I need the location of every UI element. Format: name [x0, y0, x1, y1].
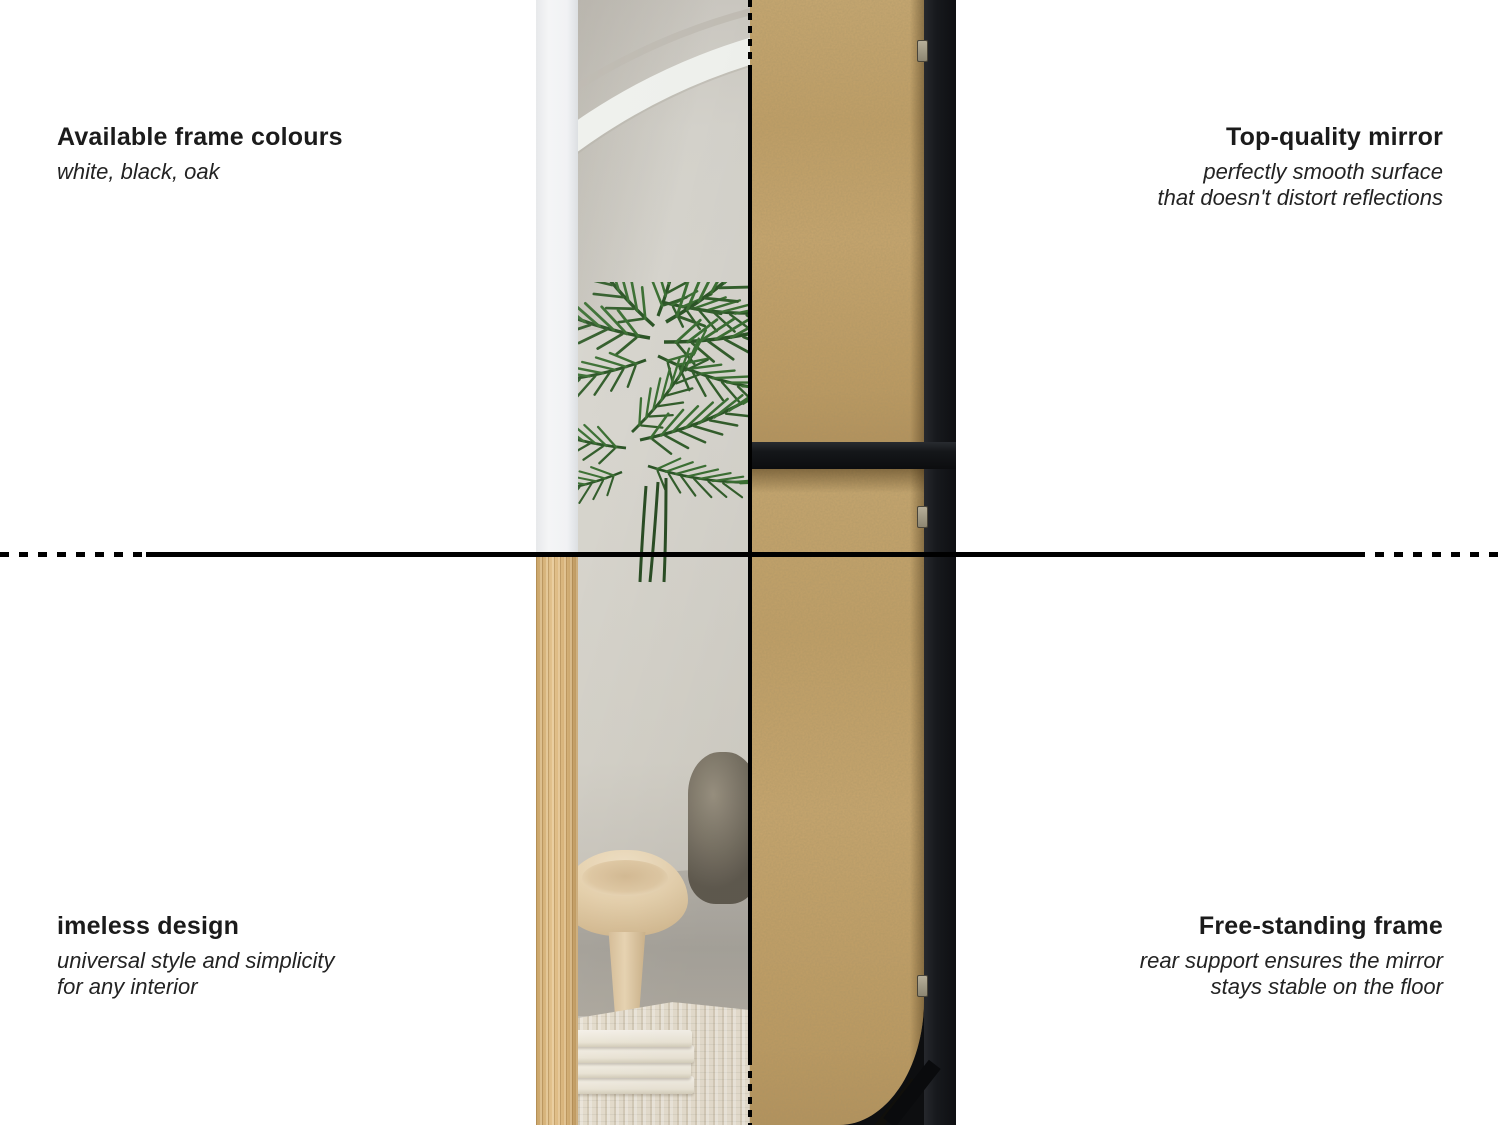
- vertical-guide-line: [748, 70, 752, 1058]
- mirror-frame-oak: [536, 557, 578, 1125]
- feature-description-line: universal style and simplicity: [57, 948, 477, 974]
- mirror-front-view: [536, 0, 750, 1125]
- feature-description-line: white, black, oak: [57, 159, 477, 185]
- mdf-back-panel-upper: [750, 0, 924, 442]
- mirror-glass-sheen: [578, 0, 750, 1125]
- feature-title: Available frame colours: [57, 122, 477, 152]
- rear-bar-shadow: [750, 469, 924, 493]
- mdf-back-panel-lower: [750, 442, 924, 1125]
- feature-description: white, black, oak: [57, 159, 477, 185]
- feature-description: rear support ensures the mirror stays st…: [1023, 948, 1443, 1000]
- feature-description-line: rear support ensures the mirror: [1023, 948, 1443, 974]
- mdf-texture: [750, 442, 924, 1125]
- mdf-edge-shadow: [910, 0, 924, 442]
- mirror-reflection: [578, 0, 750, 1125]
- feature-description-line: perfectly smooth surface: [1023, 159, 1443, 185]
- feature-description-line: for any interior: [57, 974, 477, 1000]
- feature-top-quality-mirror: Top-quality mirror perfectly smooth surf…: [1023, 122, 1443, 211]
- frame-clip: [917, 975, 928, 997]
- feature-title: Top-quality mirror: [1023, 122, 1443, 152]
- feature-description: universal style and simplicity for any i…: [57, 948, 477, 1000]
- mdf-texture: [750, 0, 924, 442]
- mdf-edge-shadow: [910, 442, 924, 1125]
- frame-clip: [917, 40, 928, 62]
- vertical-guide-dashed-top: [748, 0, 752, 70]
- product-photo: [536, 0, 956, 1125]
- vertical-guide-dashed-bottom: [748, 1058, 752, 1125]
- feature-description: perfectly smooth surface that doesn't di…: [1023, 159, 1443, 211]
- mirror-back-view: [750, 0, 956, 1125]
- horizontal-guide-dashed-right: [1356, 552, 1500, 557]
- feature-frame-colours: Available frame colours white, black, oa…: [57, 122, 477, 185]
- feature-title: imeless design: [57, 911, 477, 941]
- frame-clip: [917, 506, 928, 528]
- feature-free-standing-frame: Free-standing frame rear support ensures…: [1023, 911, 1443, 1000]
- horizontal-guide-dashed-left: [0, 552, 146, 557]
- mirror-frame-white: [536, 0, 578, 557]
- rear-support-bar: [750, 442, 956, 469]
- feature-title: Free-standing frame: [1023, 911, 1443, 941]
- feature-timeless-design: imeless design universal style and simpl…: [57, 911, 477, 1000]
- feature-description-line: that doesn't distort reflections: [1023, 185, 1443, 211]
- feature-description-line: stays stable on the floor: [1023, 974, 1443, 1000]
- black-frame-edge: [924, 0, 956, 1125]
- product-infographic: Available frame colours white, black, oa…: [0, 0, 1500, 1125]
